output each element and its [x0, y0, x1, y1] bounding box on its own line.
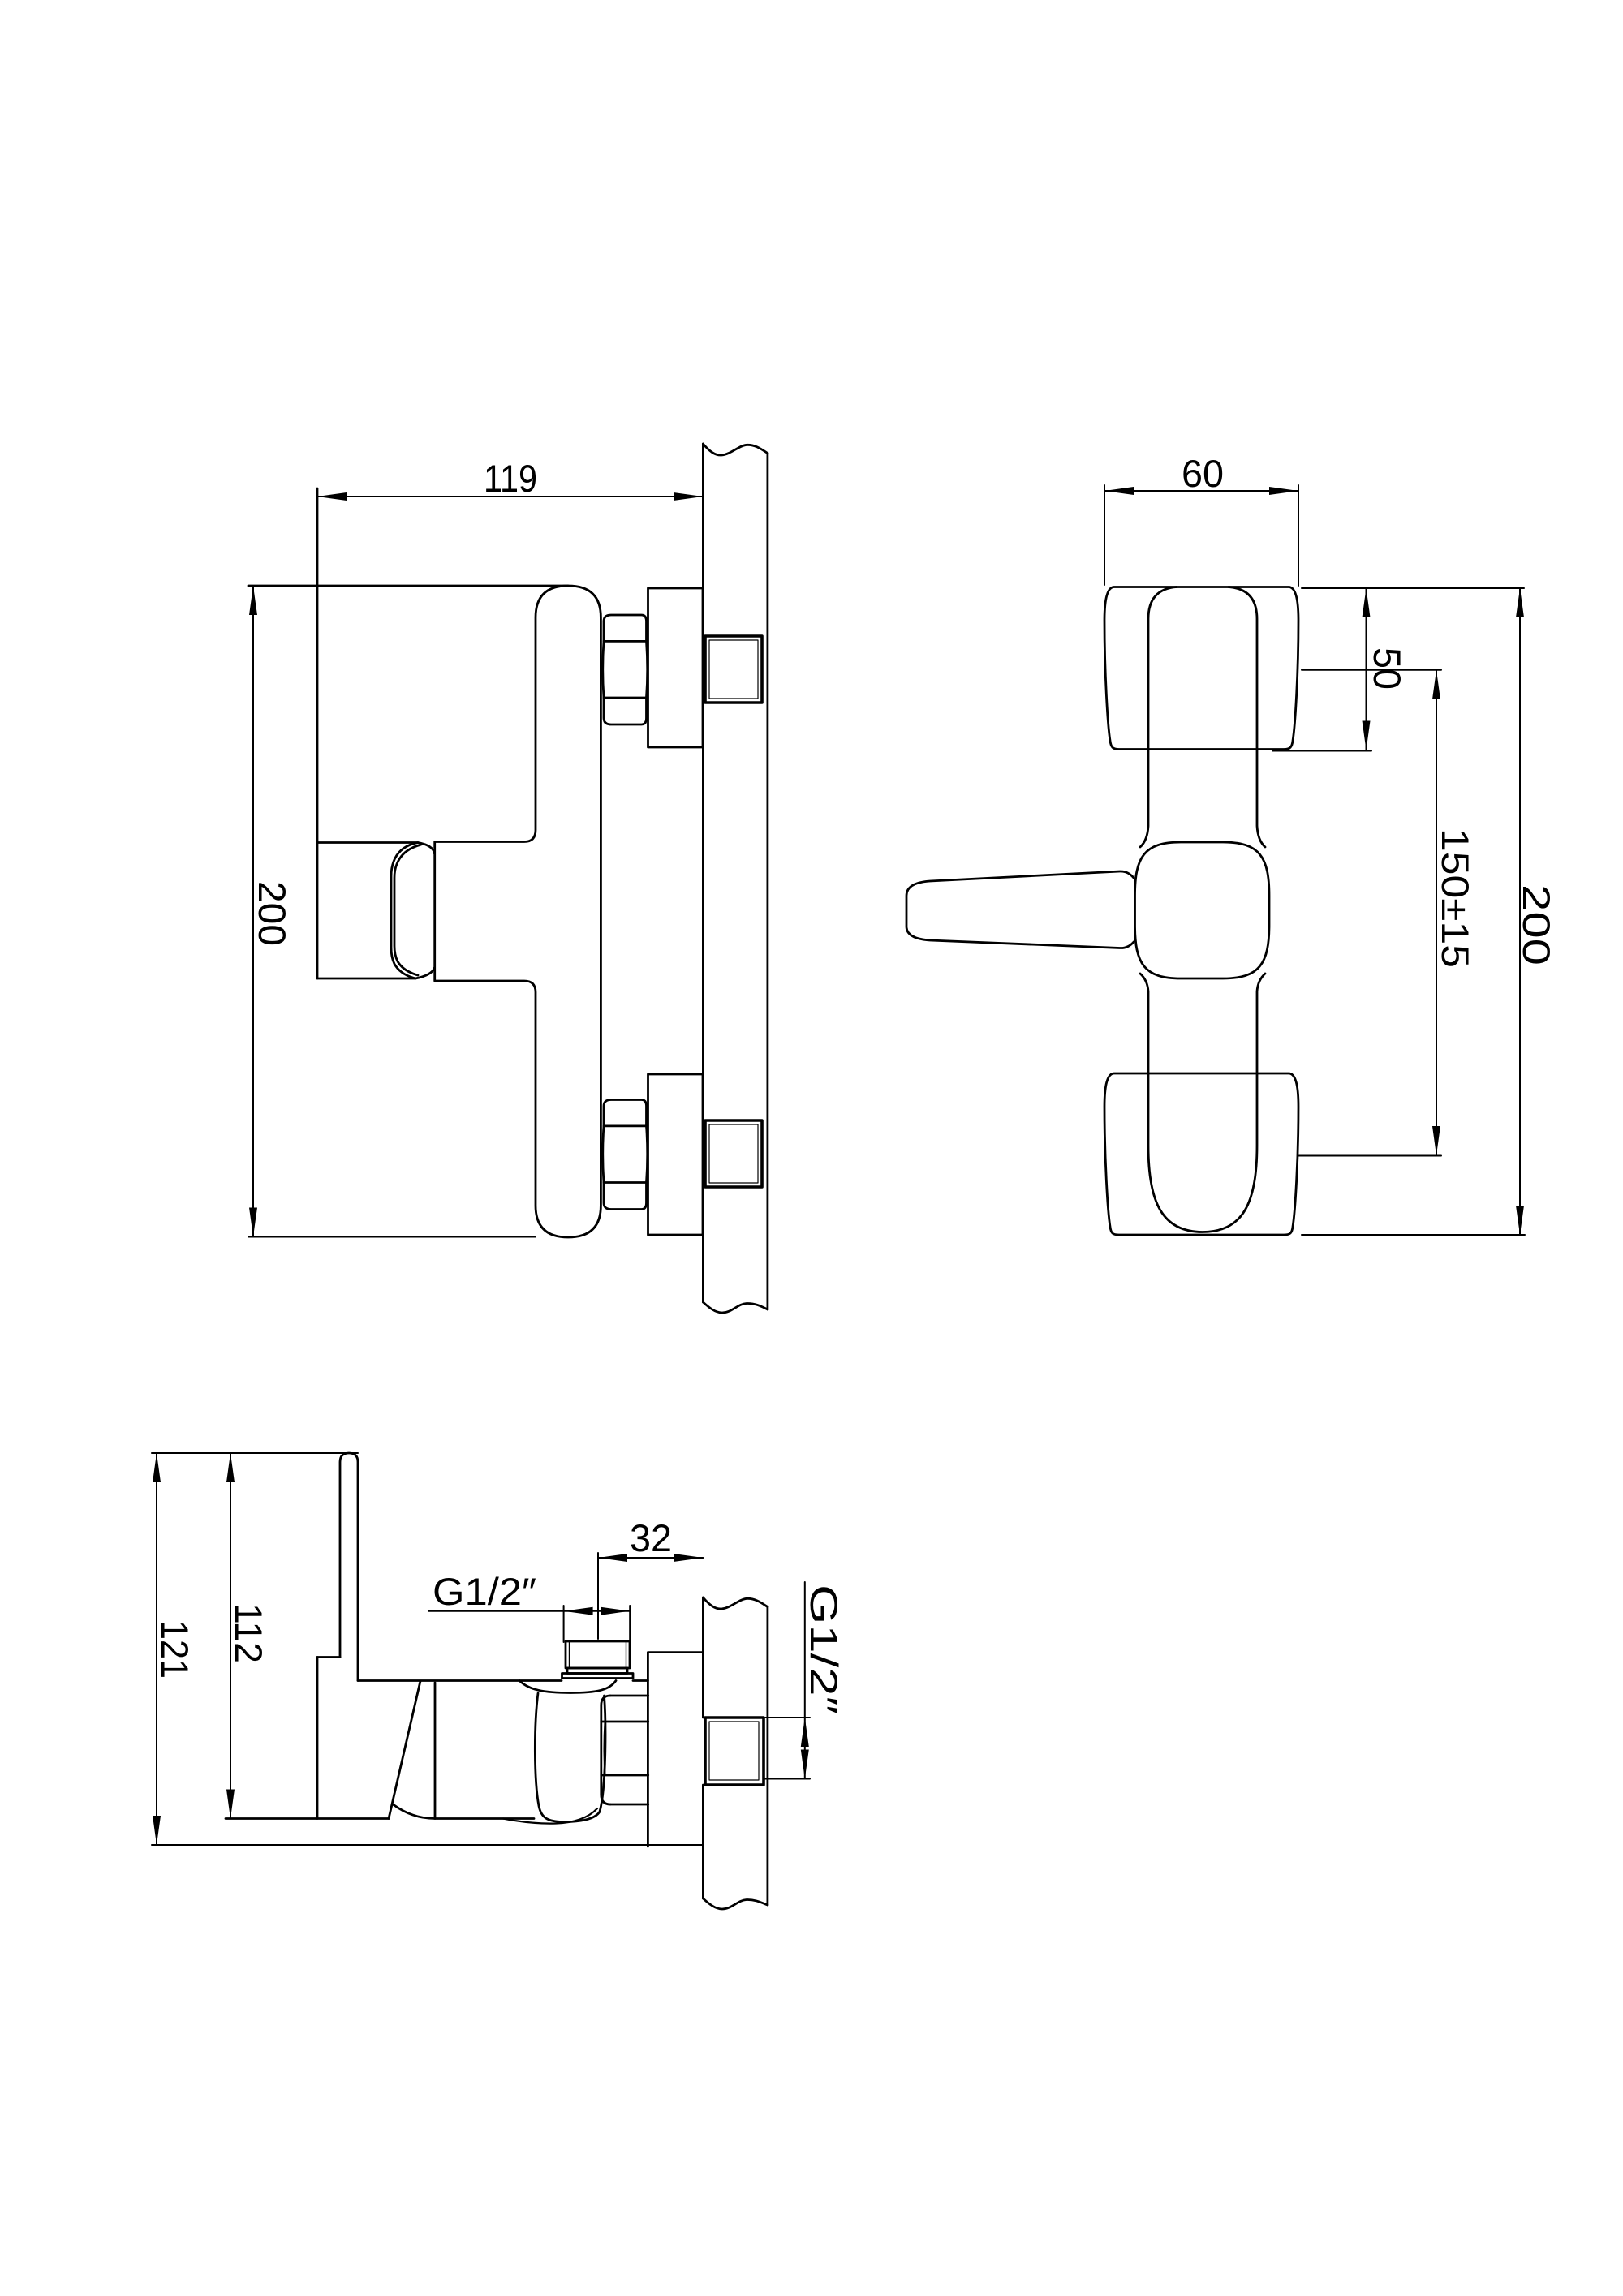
svg-text:G1/2″: G1/2″ — [803, 1584, 846, 1714]
svg-text:60: 60 — [1182, 452, 1224, 495]
svg-text:121: 121 — [153, 1620, 196, 1679]
svg-text:119: 119 — [484, 457, 537, 500]
svg-text:50: 50 — [1366, 647, 1409, 690]
svg-text:G1/2″: G1/2″ — [433, 1570, 536, 1613]
svg-text:112: 112 — [227, 1603, 270, 1663]
svg-text:200: 200 — [1515, 884, 1558, 965]
svg-text:200: 200 — [251, 881, 294, 946]
svg-text:150±15: 150±15 — [1434, 828, 1477, 968]
svg-text:32: 32 — [630, 1516, 672, 1559]
